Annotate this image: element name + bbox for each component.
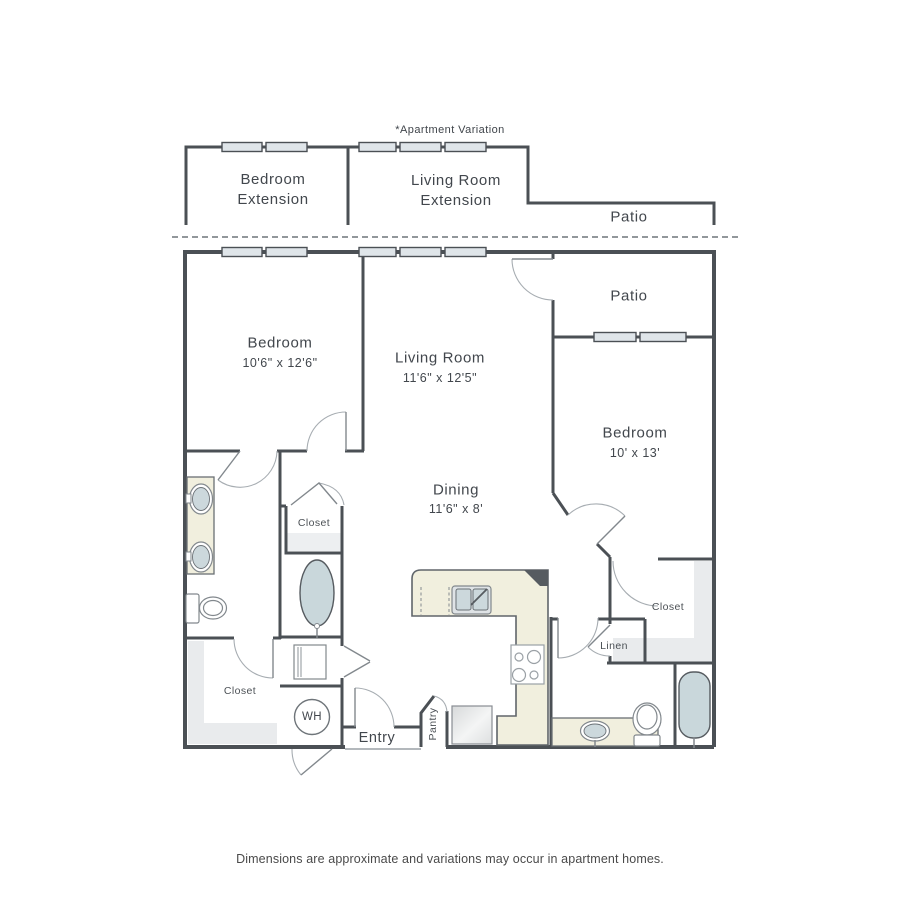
room-label-living-room-extension: Living Room Extension — [394, 171, 519, 211]
label-bedroom2-closet: Closet — [652, 601, 684, 613]
room-dims-dining: 11'6" x 8' — [429, 502, 483, 516]
room-label-patio-variation: Patio — [610, 209, 647, 226]
toilet — [633, 703, 661, 746]
kitchen-sink — [452, 586, 491, 614]
faucet — [186, 552, 191, 561]
room-label-bedroom1: Bedroom — [247, 335, 312, 352]
room-dims-bedroom2: 10' x 13' — [610, 446, 660, 460]
room-label-bedroom-extension: Bedroom Extension — [213, 170, 333, 210]
floor-plan-page: *Apartment Variation Bedroom Extension L… — [0, 0, 900, 900]
room-label-living-room: Living Room — [395, 350, 485, 367]
faucet — [186, 494, 191, 503]
stove — [511, 645, 544, 684]
room-label-bedroom2: Bedroom — [602, 425, 667, 442]
disclaimer-text: Dimensions are approximate and variation… — [236, 852, 664, 866]
refrigerator — [452, 706, 492, 744]
room-label-dining: Dining — [433, 482, 479, 499]
label-water-heater: WH — [302, 711, 322, 723]
closet-shading — [188, 533, 712, 744]
washer-dryer — [294, 645, 326, 679]
bathtub — [300, 560, 334, 638]
bathroom1-vanity — [186, 477, 214, 574]
label-entry: Entry — [359, 730, 396, 746]
room-dims-bedroom1: 10'6" x 12'6" — [242, 356, 317, 370]
room-label-patio: Patio — [610, 288, 647, 305]
label-pantry: Pantry — [427, 708, 439, 741]
apartment-variation-note: *Apartment Variation — [395, 124, 504, 136]
label-hall-closet: Closet — [298, 517, 330, 529]
label-linen-closet: Linen — [600, 640, 628, 652]
room-dims-living-room: 11'6" x 12'5" — [403, 371, 477, 385]
toilet — [186, 594, 227, 623]
bathtub — [679, 672, 710, 748]
label-walkin-closet: Closet — [224, 685, 256, 697]
